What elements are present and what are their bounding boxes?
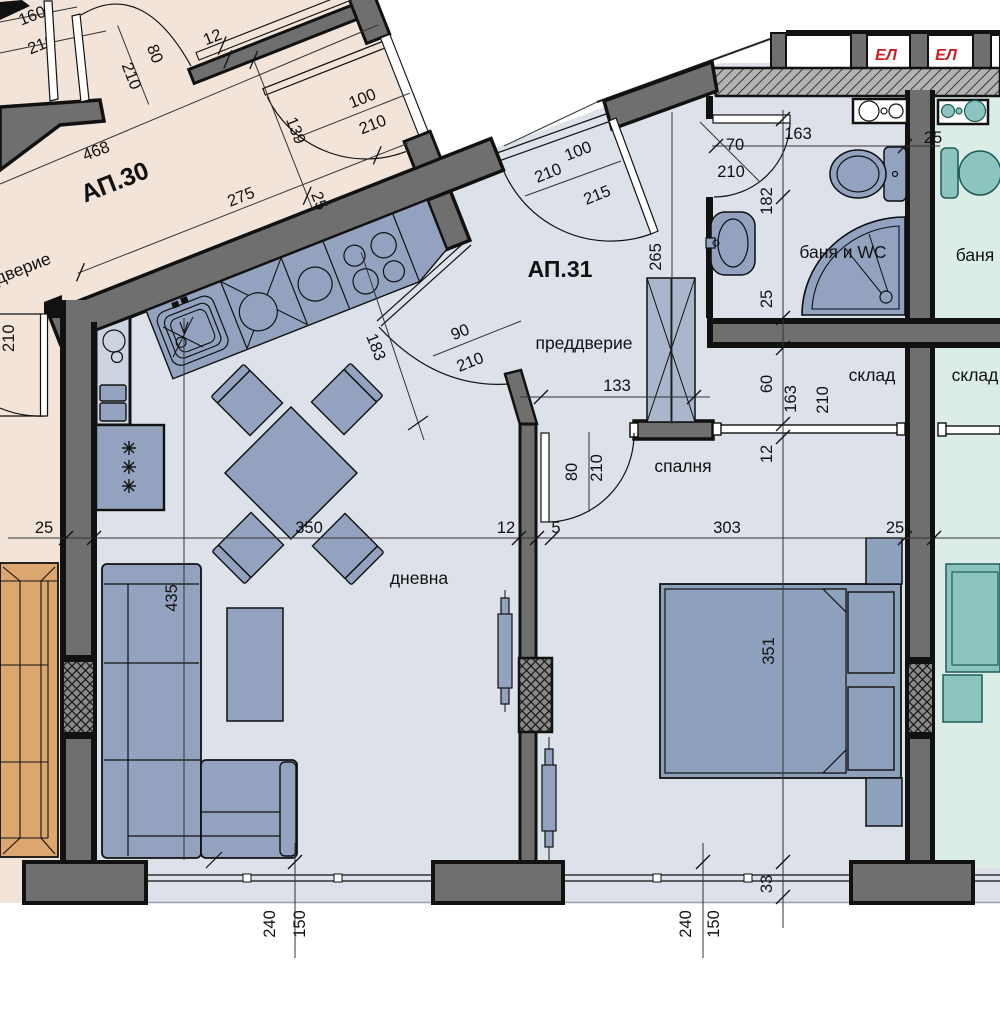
svg-text:склад: склад — [952, 365, 999, 385]
svg-text:163: 163 — [782, 385, 800, 413]
svg-text:баня и WC: баня и WC — [799, 242, 886, 262]
svg-text:435: 435 — [163, 584, 181, 612]
svg-text:преддверие: преддверие — [535, 333, 632, 353]
svg-text:дневна: дневна — [390, 568, 449, 588]
svg-text:182: 182 — [758, 187, 776, 215]
svg-text:ЕЛ: ЕЛ — [875, 47, 898, 64]
svg-text:12: 12 — [497, 519, 515, 537]
svg-text:АП.31: АП.31 — [528, 256, 593, 282]
svg-text:210: 210 — [588, 454, 606, 482]
svg-text:210: 210 — [814, 386, 832, 414]
svg-text:25: 25 — [924, 129, 942, 147]
svg-text:70: 70 — [726, 136, 744, 154]
svg-text:210: 210 — [0, 324, 18, 352]
svg-text:240: 240 — [261, 910, 279, 938]
svg-text:33: 33 — [758, 875, 776, 893]
svg-text:133: 133 — [603, 377, 631, 395]
svg-text:80: 80 — [563, 463, 581, 481]
svg-text:351: 351 — [760, 637, 778, 665]
svg-text:12: 12 — [758, 445, 776, 463]
svg-text:25: 25 — [886, 519, 904, 537]
svg-text:350: 350 — [295, 519, 323, 537]
svg-text:баня: баня — [956, 245, 995, 265]
svg-text:240: 240 — [677, 910, 695, 938]
svg-text:25: 25 — [35, 519, 53, 537]
svg-text:150: 150 — [291, 910, 309, 938]
svg-text:163: 163 — [784, 125, 812, 143]
svg-text:150: 150 — [705, 910, 723, 938]
svg-text:60: 60 — [758, 375, 776, 393]
svg-text:210: 210 — [717, 163, 745, 181]
svg-text:25: 25 — [758, 290, 776, 308]
svg-text:265: 265 — [647, 243, 665, 271]
svg-text:склад: склад — [849, 365, 896, 385]
svg-text:303: 303 — [713, 519, 741, 537]
svg-text:ЕЛ: ЕЛ — [935, 47, 958, 64]
svg-text:5: 5 — [551, 519, 560, 537]
svg-text:спалня: спалня — [654, 456, 711, 476]
